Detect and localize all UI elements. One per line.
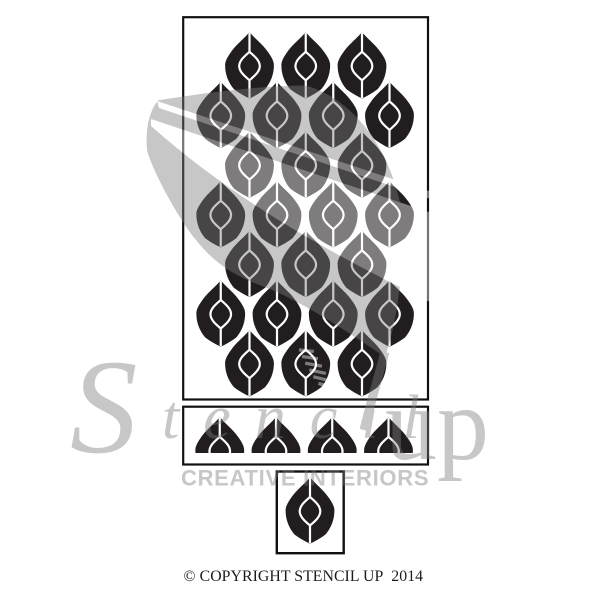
svg-text:S: S [70,333,138,482]
svg-text:© COPYRIGHT STENCIL UP 2014: © COPYRIGHT STENCIL UP 2014 [184,568,424,585]
svg-text:CREATIVE INTERIORS: CREATIVE INTERIORS [181,466,429,491]
